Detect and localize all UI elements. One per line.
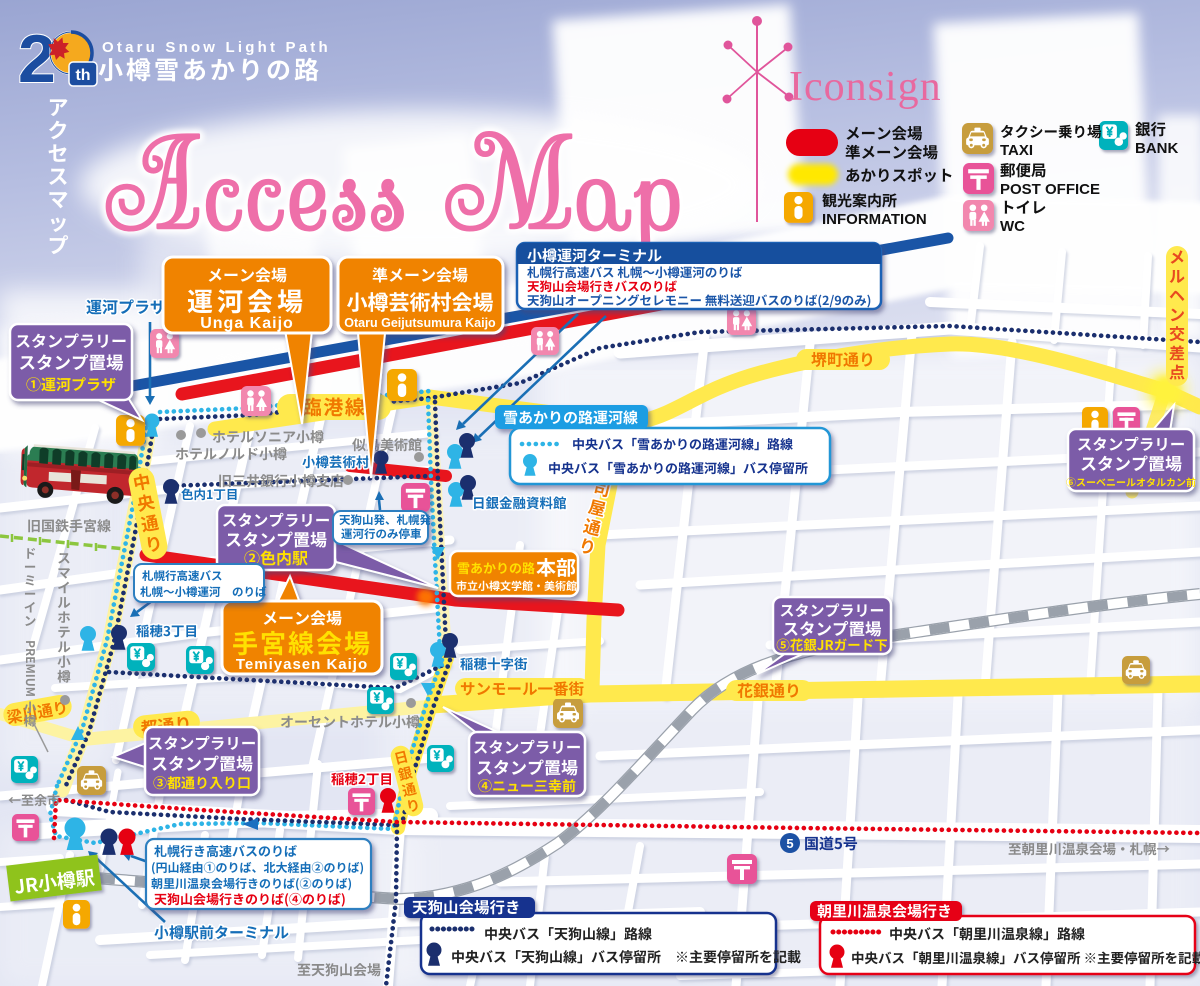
svg-text:POST OFFICE: POST OFFICE (1000, 181, 1100, 198)
svg-text:Unga Kaijo: Unga Kaijo (200, 315, 294, 332)
svg-text:5: 5 (786, 836, 793, 851)
svg-text:INFORMATION: INFORMATION (822, 211, 927, 228)
svg-text:BANK: BANK (1135, 140, 1178, 157)
svg-text:Otaru Geijutsumura Kaijo: Otaru Geijutsumura Kaijo (344, 316, 496, 330)
svg-text:Temiyasen Kaijo: Temiyasen Kaijo (236, 656, 368, 673)
svg-text:TAXI: TAXI (1000, 142, 1033, 159)
svg-text:th: th (75, 67, 90, 84)
svg-text:Iconsign: Iconsign (789, 64, 942, 110)
svg-text:Otaru Snow Light Path: Otaru Snow Light Path (102, 39, 331, 56)
svg-text:WC: WC (1000, 218, 1025, 235)
